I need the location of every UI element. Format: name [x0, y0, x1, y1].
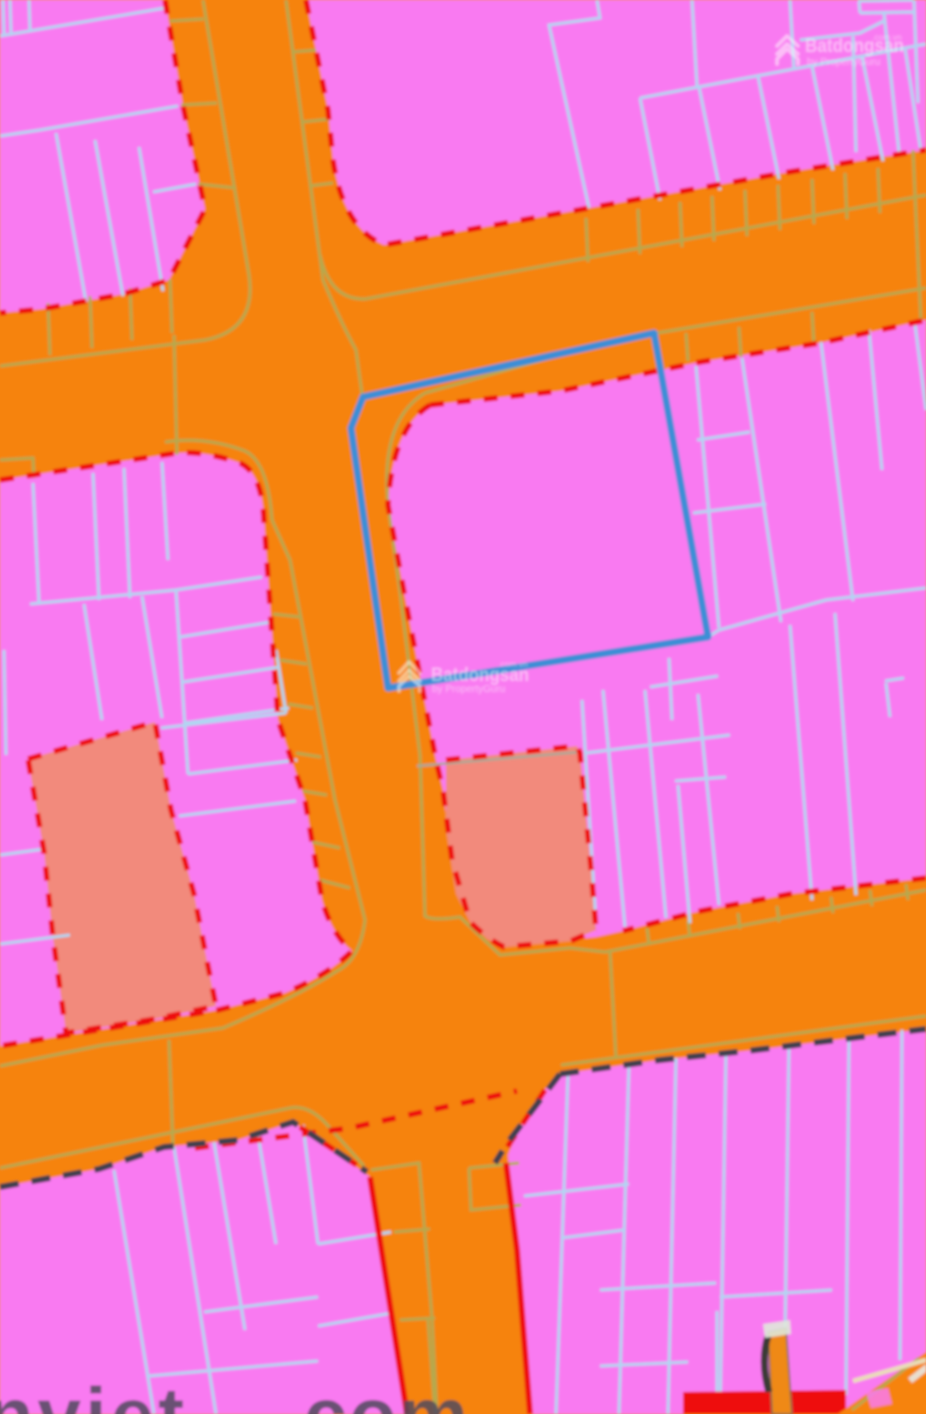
svg-text:by PropertyGuru: by PropertyGuru [432, 684, 505, 695]
svg-text:.com.vn: .com.vn [498, 659, 528, 669]
svg-text:nviet: nviet [0, 1371, 188, 1414]
svg-text:.com: .com [280, 1371, 470, 1414]
svg-text:by PropertyGuru: by PropertyGuru [807, 57, 880, 68]
svg-text:.com.vn: .com.vn [872, 32, 902, 42]
